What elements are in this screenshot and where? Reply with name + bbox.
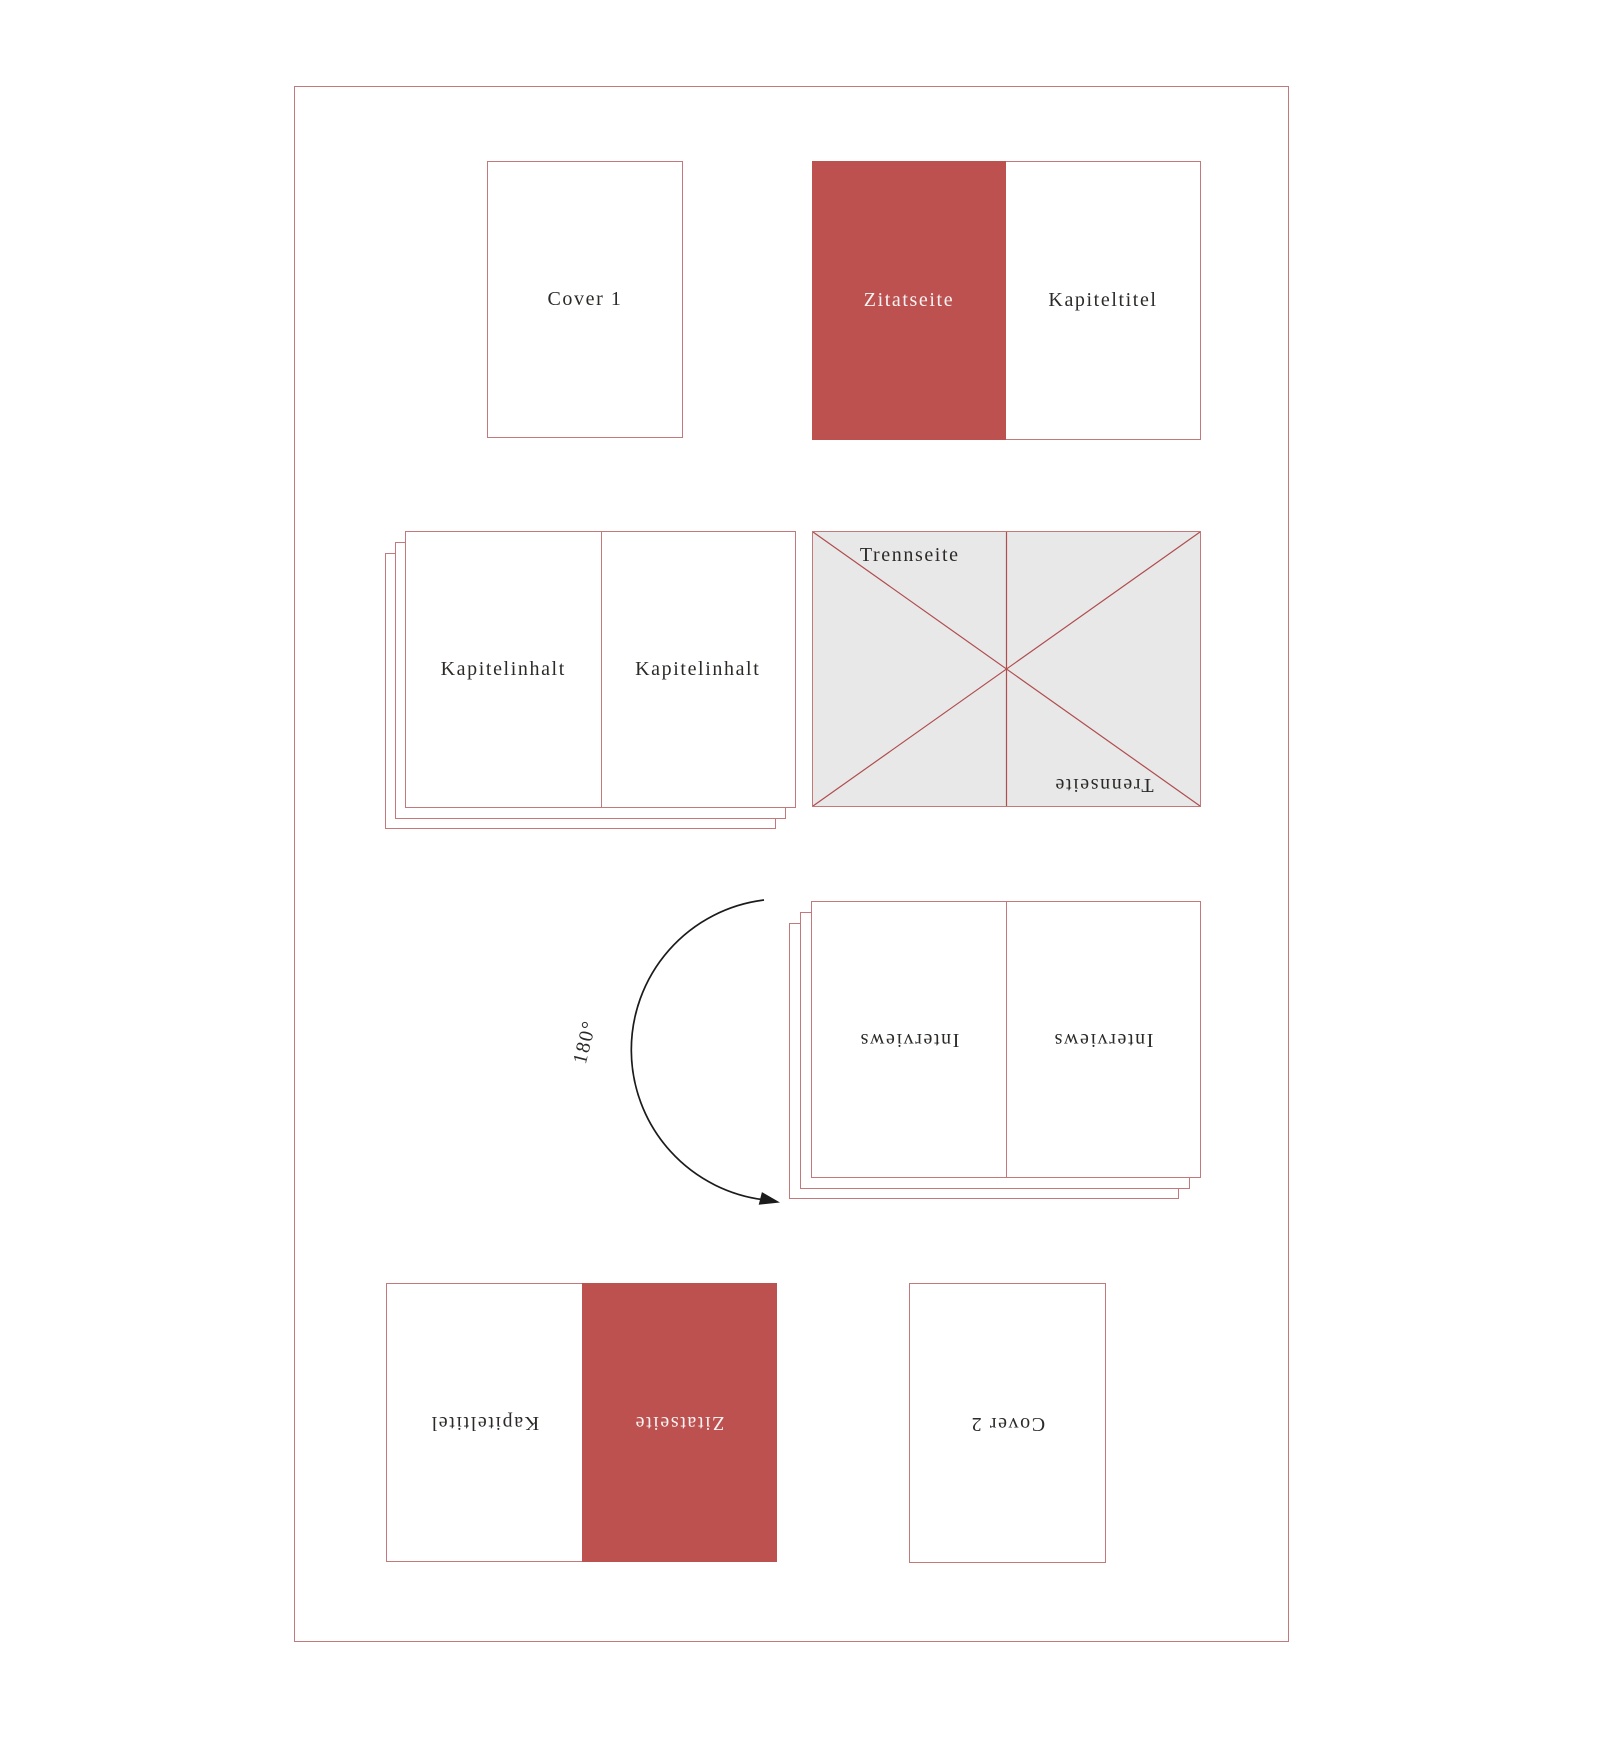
zitatseite-bottom-label: Zitatseite [634,1411,724,1434]
page-kapitelinhalt-right: Kapitelinhalt [601,532,796,807]
page-kapitelinhalt-left: Kapitelinhalt [406,532,601,807]
page-zitatseite-red: Zitatseite [812,161,1006,440]
page-interviews-left: Interviews [812,902,1006,1177]
spread-center-fold [601,532,602,807]
page-kapiteltitel-bottom: Kapiteltitel [387,1284,582,1561]
kapiteltitel-bottom-label: Kapiteltitel [430,1411,539,1434]
trennseite-top-label: Trennseite [813,544,1007,567]
spread-zitat-kapitel: Zitatseite Kapiteltitel [812,161,1201,440]
cover2-label: Cover 2 [970,1412,1045,1435]
trennseite-cross-icon [813,532,1200,806]
page-interviews-right: Interviews [1006,902,1200,1177]
kapiteltitel-label: Kapiteltitel [1048,289,1157,312]
interviews-spread-front: Interviews Interviews [811,901,1201,1178]
cover1-page: Cover 1 [487,161,683,438]
page-zitatseite-bottom-red: Zitatseite [582,1283,777,1562]
kapitelinhalt-right-label: Kapitelinhalt [635,658,760,681]
spread-kapitel-zitat-bottom: Kapiteltitel Zitatseite [386,1283,777,1562]
kapitelinhalt-left-label: Kapitelinhalt [441,658,566,681]
rotation-arrow-icon [560,880,800,1220]
zitatseite-label: Zitatseite [864,289,954,312]
cover1-label: Cover 1 [547,288,622,311]
interviews-left-label: Interviews [859,1028,959,1051]
trennseite-spread: Trennseite Trennseite [812,531,1201,807]
cover2-page: Cover 2 [909,1283,1106,1563]
book-structure-diagram: Cover 1 Zitatseite Kapiteltitel Kapiteli… [0,0,1600,1738]
interviews-right-label: Interviews [1053,1028,1153,1051]
page-kapiteltitel: Kapiteltitel [1006,162,1200,439]
spread-center-fold [1006,902,1007,1177]
trennseite-bottom-label: Trennseite [1007,773,1201,796]
chapter-spread-front: Kapitelinhalt Kapitelinhalt [405,531,796,808]
